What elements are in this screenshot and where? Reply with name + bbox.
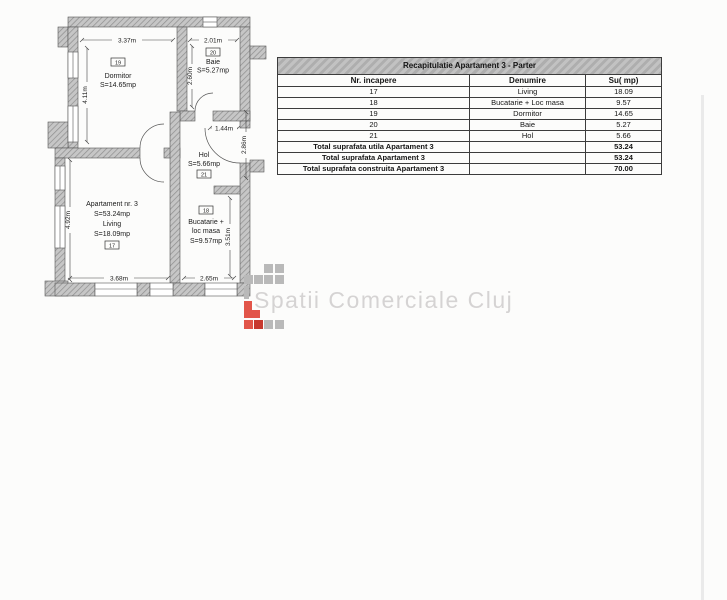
room-area-bucatarie: S=9.57mp: [190, 238, 222, 245]
room-number-hol: 21: [201, 173, 207, 179]
room-label-bucatarie: 18 Bucatarie + loc masa S=9.57mp: [188, 206, 224, 245]
scanned-page: 3.37m 2.01m 4.11m 2.60m 1.44m 2.86m 4.92…: [0, 0, 727, 600]
logo-square: [244, 275, 253, 284]
table-row: 17 Living 18.09: [278, 87, 662, 98]
logo-square: [244, 320, 253, 329]
logo-square: [275, 275, 284, 284]
logo-square: [244, 286, 249, 299]
room-area-dormitor: S=14.65mp: [100, 82, 136, 89]
room-label-hol: Hol S=5.66mp 21: [188, 152, 220, 179]
table-total-row: Total suprafata construita Apartament 3 …: [278, 164, 662, 175]
room-label-living: Apartament nr. 3 S=53.24mp Living S=18.0…: [86, 201, 138, 250]
table-total-row: Total suprafata Apartament 3 53.24: [278, 153, 662, 164]
dormitor-door-arc: [140, 124, 164, 148]
room-area-living: S=18.09mp: [94, 231, 130, 238]
cell-nr: 19: [278, 109, 470, 120]
table-title-row: Recapitulatie Apartament 3 - Parter: [278, 58, 662, 75]
cell-su: 9.57: [586, 98, 662, 109]
dim-hol-height: 2.86m: [241, 136, 248, 154]
room-label-dormitor: 19 Dormitor S=14.65mp: [100, 58, 136, 89]
col-header-nr: Nr. incapere: [278, 75, 470, 87]
room-area-hol: S=5.66mp: [188, 161, 220, 168]
dim-dormitor-height: 4.11m: [82, 86, 89, 104]
baie-door-arc: [195, 93, 213, 111]
total-label: Total suprafata utila Apartament 3: [278, 142, 470, 153]
room-number-living: 17: [109, 244, 115, 250]
room-name-dormitor: Dormitor: [105, 73, 133, 80]
door-arcs: [140, 93, 240, 182]
table-total-row: Total suprafata utila Apartament 3 53.24: [278, 142, 662, 153]
dimension-lines: [68, 38, 248, 282]
total-value: 70.00: [586, 164, 662, 175]
cell-su: 5.66: [586, 131, 662, 142]
dim-living-width: 3.68m: [110, 276, 128, 283]
logo-square: [264, 264, 273, 273]
dim-hol-width: 1.44m: [215, 126, 233, 133]
cell-denumire: Bucatarie + Loc masa: [470, 98, 586, 109]
dim-living-height: 4.92m: [65, 211, 72, 229]
room-number-dormitor: 19: [115, 61, 121, 67]
table-row: 19 Dormitor 14.65: [278, 109, 662, 120]
room-number-baie: 20: [210, 51, 216, 57]
table-row: 21 Hol 5.66: [278, 131, 662, 142]
cell-denumire: Baie: [470, 120, 586, 131]
entry-door-arc: [205, 128, 240, 163]
total-label: Total suprafata construita Apartament 3: [278, 164, 470, 175]
total-spacer: [470, 164, 586, 175]
table-row: 18 Bucatarie + Loc masa 9.57: [278, 98, 662, 109]
table-title: Recapitulatie Apartament 3 - Parter: [278, 58, 662, 75]
logo-square: [264, 320, 273, 329]
cell-denumire: Hol: [470, 131, 586, 142]
room-name-bucatarie-line1: Bucatarie +: [188, 219, 224, 226]
cell-su: 14.65: [586, 109, 662, 120]
apartment-area: S=53.24mp: [94, 211, 130, 218]
room-name-living: Living: [103, 221, 121, 228]
dim-bucatarie-height: 3.51m: [225, 228, 232, 246]
logo-square: [244, 301, 252, 318]
table-row: 20 Baie 5.27: [278, 120, 662, 131]
room-label-baie: 20 Baie S=5.27mp: [197, 48, 229, 75]
total-value: 53.24: [586, 153, 662, 164]
cell-nr: 17: [278, 87, 470, 98]
room-name-bucatarie-line2: loc masa: [192, 228, 220, 235]
dim-dormitor-width: 3.37m: [118, 38, 136, 45]
room-name-baie: Baie: [206, 59, 220, 66]
scan-edge-artifact: [701, 95, 704, 600]
dim-bucatarie-width: 2.65m: [200, 276, 218, 283]
total-spacer: [470, 142, 586, 153]
cell-denumire: Living: [470, 87, 586, 98]
room-number-bucatarie: 18: [203, 209, 209, 215]
recap-table: Recapitulatie Apartament 3 - Parter Nr. …: [277, 57, 662, 175]
col-header-su: Su( mp): [586, 75, 662, 87]
logo-square: [275, 320, 284, 329]
cell-denumire: Dormitor: [470, 109, 586, 120]
dim-baie-width: 2.01m: [204, 38, 222, 45]
logo-square: [264, 275, 273, 284]
living-door-arc: [140, 158, 164, 182]
cell-nr: 18: [278, 98, 470, 109]
total-label: Total suprafata Apartament 3: [278, 153, 470, 164]
table-header-row: Nr. incapere Denumire Su( mp): [278, 75, 662, 87]
cell-su: 18.09: [586, 87, 662, 98]
dim-baie-height: 2.60m: [187, 67, 194, 85]
logo-square: [254, 275, 263, 284]
watermark-text: Spatii Comerciale Cluj: [254, 287, 513, 314]
total-value: 53.24: [586, 142, 662, 153]
cell-nr: 21: [278, 131, 470, 142]
room-name-hol: Hol: [199, 152, 210, 159]
cell-nr: 20: [278, 120, 470, 131]
cell-su: 5.27: [586, 120, 662, 131]
total-spacer: [470, 153, 586, 164]
col-header-denumire: Denumire: [470, 75, 586, 87]
apartment-name: Apartament nr. 3: [86, 201, 138, 208]
logo-square: [275, 264, 284, 273]
room-area-baie: S=5.27mp: [197, 68, 229, 75]
logo-square: [254, 320, 263, 329]
